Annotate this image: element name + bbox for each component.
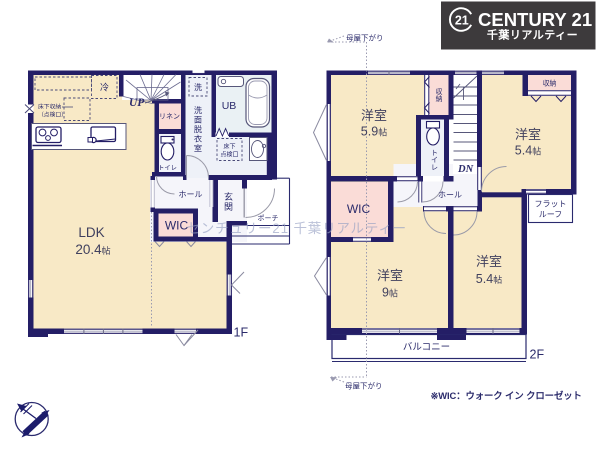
svg-text:ホール: ホール [179,190,203,199]
svg-text:ルーフ: ルーフ [539,210,563,219]
svg-text:洗: 洗 [194,82,202,92]
svg-text:9帖: 9帖 [382,286,398,300]
svg-text:リネン: リネン [159,113,180,121]
svg-text:床下収納: 床下収納 [38,103,61,111]
svg-text:洗面脱衣室: 洗面脱衣室 [194,105,202,153]
svg-text:UP: UP [129,97,145,109]
svg-text:洋室: 洋室 [476,254,502,269]
svg-text:収納: 収納 [436,88,443,103]
svg-text:玄関: 玄関 [224,191,233,212]
svg-text:洋室: 洋室 [515,127,541,142]
svg-text:床下: 床下 [223,143,235,151]
svg-text:センチュリー21 千葉リアルティー: センチュリー21 千葉リアルティー [187,221,407,236]
svg-text:WIC: WIC [165,219,189,233]
svg-text:5.9帖: 5.9帖 [361,125,387,139]
svg-text:1F: 1F [234,326,249,340]
svg-text:トイレ: トイレ [431,150,438,171]
svg-text:フラット: フラット [535,200,567,209]
svg-text:WIC: WIC [347,202,371,216]
svg-text:21: 21 [455,13,469,27]
svg-text:LDK: LDK [78,225,104,240]
svg-text:バルコニー: バルコニー [403,342,450,353]
svg-text:洋室: 洋室 [377,268,403,283]
svg-text:※WIC：ウォーク イン クローゼット: ※WIC：ウォーク イン クローゼット [431,390,582,401]
svg-text:（点検口）: （点検口） [38,111,67,119]
svg-text:CENTURY 21: CENTURY 21 [478,9,592,30]
svg-text:UB: UB [222,100,237,112]
svg-text:洋室: 洋室 [361,108,387,123]
svg-text:2F: 2F [530,348,545,362]
svg-text:ホール: ホール [438,191,462,200]
svg-text:千葉リアルティー: 千葉リアルティー [487,28,578,42]
svg-text:冷: 冷 [100,82,109,93]
svg-text:点検口: 点検口 [220,151,238,159]
svg-text:5.4帖: 5.4帖 [476,272,502,286]
svg-text:DN: DN [457,164,474,175]
svg-text:母屋下がり: 母屋下がり [345,381,383,391]
svg-text:5.4帖: 5.4帖 [515,144,541,158]
svg-text:収納: 収納 [543,79,557,88]
svg-text:トイレ: トイレ [158,165,177,172]
svg-text:母屋下がり: 母屋下がり [346,33,384,43]
